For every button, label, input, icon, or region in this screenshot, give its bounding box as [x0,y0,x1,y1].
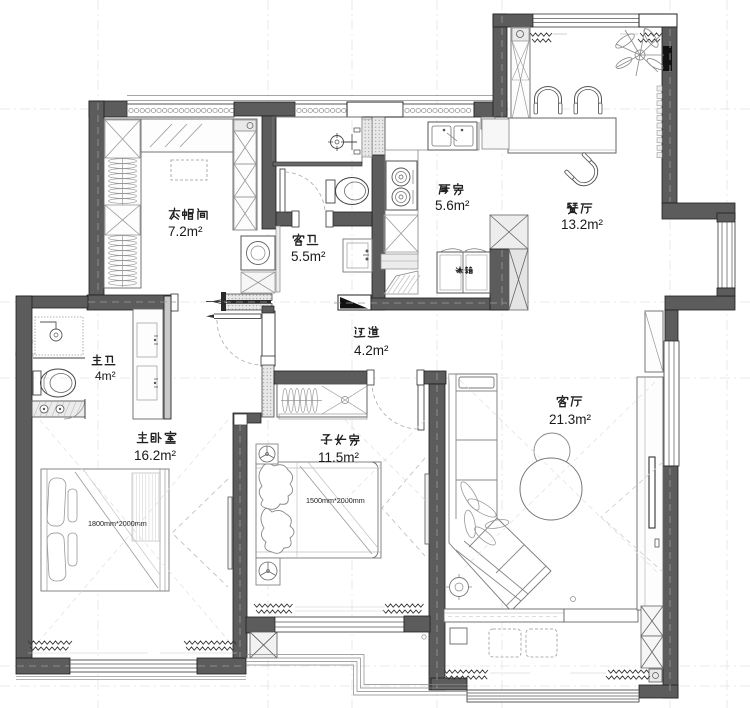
svg-text:7.2m²: 7.2m² [168,224,203,239]
svg-text:5.6m²: 5.6m² [435,198,470,213]
svg-text:21.3m²: 21.3m² [549,412,592,427]
svg-text:1800mm*2000mm: 1800mm*2000mm [88,519,147,528]
svg-text:11.5m²: 11.5m² [318,450,360,465]
svg-text:4m²: 4m² [95,369,116,383]
svg-text:13.2m²: 13.2m² [561,217,604,232]
svg-text:16.2m²: 16.2m² [134,448,177,463]
svg-text:4.2m²: 4.2m² [354,343,389,358]
svg-text:5.5m²: 5.5m² [291,249,326,264]
svg-text:1500mm*2000mm: 1500mm*2000mm [306,496,365,505]
